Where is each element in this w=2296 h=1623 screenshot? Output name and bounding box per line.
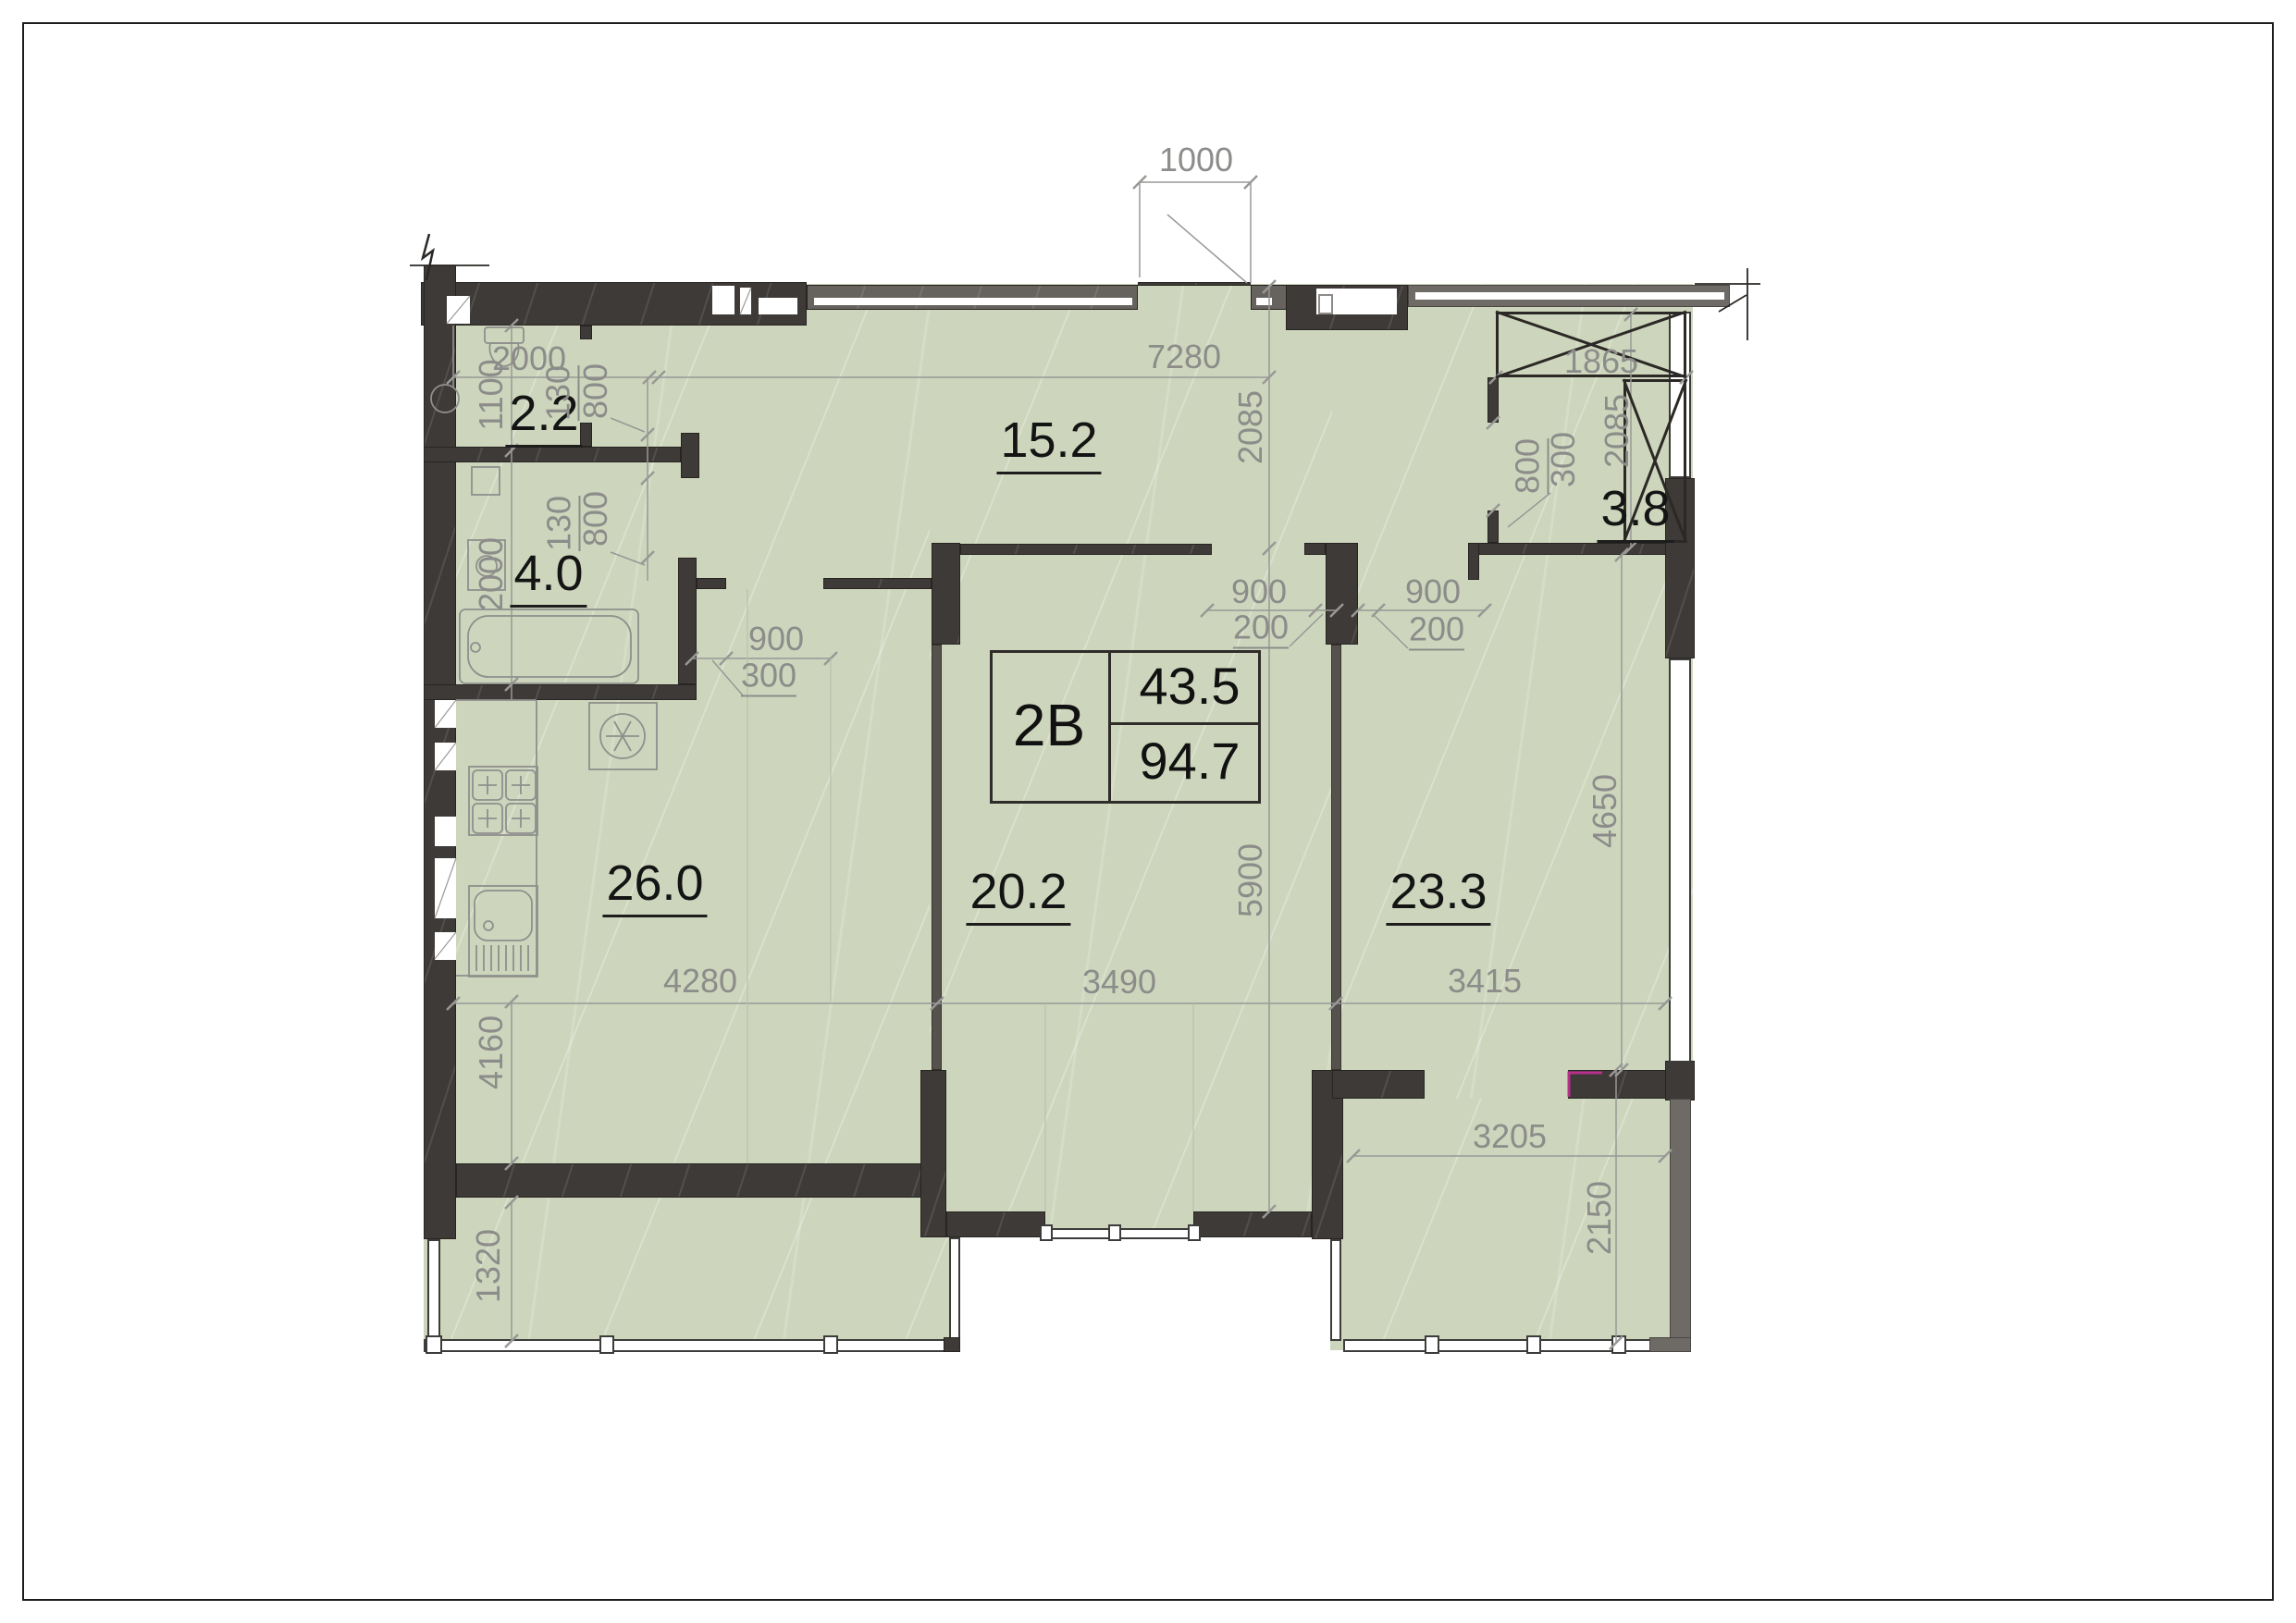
sink-bowl-icon [475,891,532,941]
break-mark-top-right [410,265,1760,340]
unit-total-area: 94.7 [1140,735,1241,787]
bathtub-icon [460,609,638,683]
dim-hall-depth: 2085 [1234,390,1267,464]
sink-faucet-icon [484,921,493,930]
dim-storage-door-jamb: 300 [1547,432,1580,487]
dim-shaft-width: 1865 [1564,345,1638,378]
room-label-bathroom: 4.0 [510,548,586,608]
dim-wc-door-jamb: 130 [542,365,580,421]
dim-balcony-left-depth: 1320 [472,1229,505,1303]
dim-kitchen-door-jamb: 300 [741,659,796,697]
unit-living-area: 43.5 [1140,660,1241,712]
unit-code: 2B [1013,695,1085,755]
dim-kitchen-door: 900 [748,622,804,656]
room-label-storage: 3.8 [1597,484,1673,543]
dim-room-right-door: 900 [1405,575,1461,609]
fridge-snowflake-icon [606,721,639,751]
floor-plan: 2B 43.5 94.7 2.2 4.0 15.2 3.8 26.0 20.2 … [0,0,2296,1623]
dim-kitchen-lower-height: 4160 [475,1015,508,1089]
dim-wc-height: 1100 [475,359,508,430]
dim-balcony-right-depth: 2150 [1583,1181,1616,1255]
kitchen-counter-icon [456,700,537,976]
dim-room-right-door-jamb: 200 [1409,613,1464,651]
break-mark-top-left [423,234,433,280]
linework-layer [0,0,2296,1623]
dim-hall-width: 7280 [1147,340,1221,374]
dim-storage-depth: 2085 [1600,394,1634,468]
dim-wc-door: 800 [579,363,612,419]
room-label-hallway: 15.2 [996,415,1101,474]
stove-icon [469,767,537,835]
dim-room-center-door-jamb: 200 [1233,611,1289,649]
room-label-room-center: 20.2 [966,867,1070,926]
washing-machine-icon [472,467,500,495]
dim-bath-height: 2000 [475,537,508,611]
accent-corner-mark [1569,1073,1602,1097]
dim-room-right-width: 3415 [1448,965,1522,998]
stove-burner-crosses [478,776,530,828]
sink-unit-icon [469,886,537,977]
wc-basin-icon [431,385,459,412]
room-label-kitchen-living: 26.0 [602,858,707,917]
dim-room-center-door: 900 [1231,575,1287,609]
dim-room-center-width: 3490 [1082,965,1156,999]
dim-bath-door: 800 [579,491,612,547]
bathtub-inner-icon [468,616,631,677]
room-label-room-right: 23.3 [1386,867,1490,926]
dim-top-opening: 1000 [1159,143,1233,177]
sink-drainboard-icon [476,945,528,971]
dim-room-right-height: 4650 [1588,774,1622,848]
dim-room-center-height: 5900 [1234,843,1267,917]
dim-kitchen-width: 4280 [663,965,737,998]
dim-bath-door-jamb: 130 [543,496,581,551]
bathtub-faucet-icon [471,643,480,652]
dim-balcony-right-width: 3205 [1473,1120,1547,1153]
